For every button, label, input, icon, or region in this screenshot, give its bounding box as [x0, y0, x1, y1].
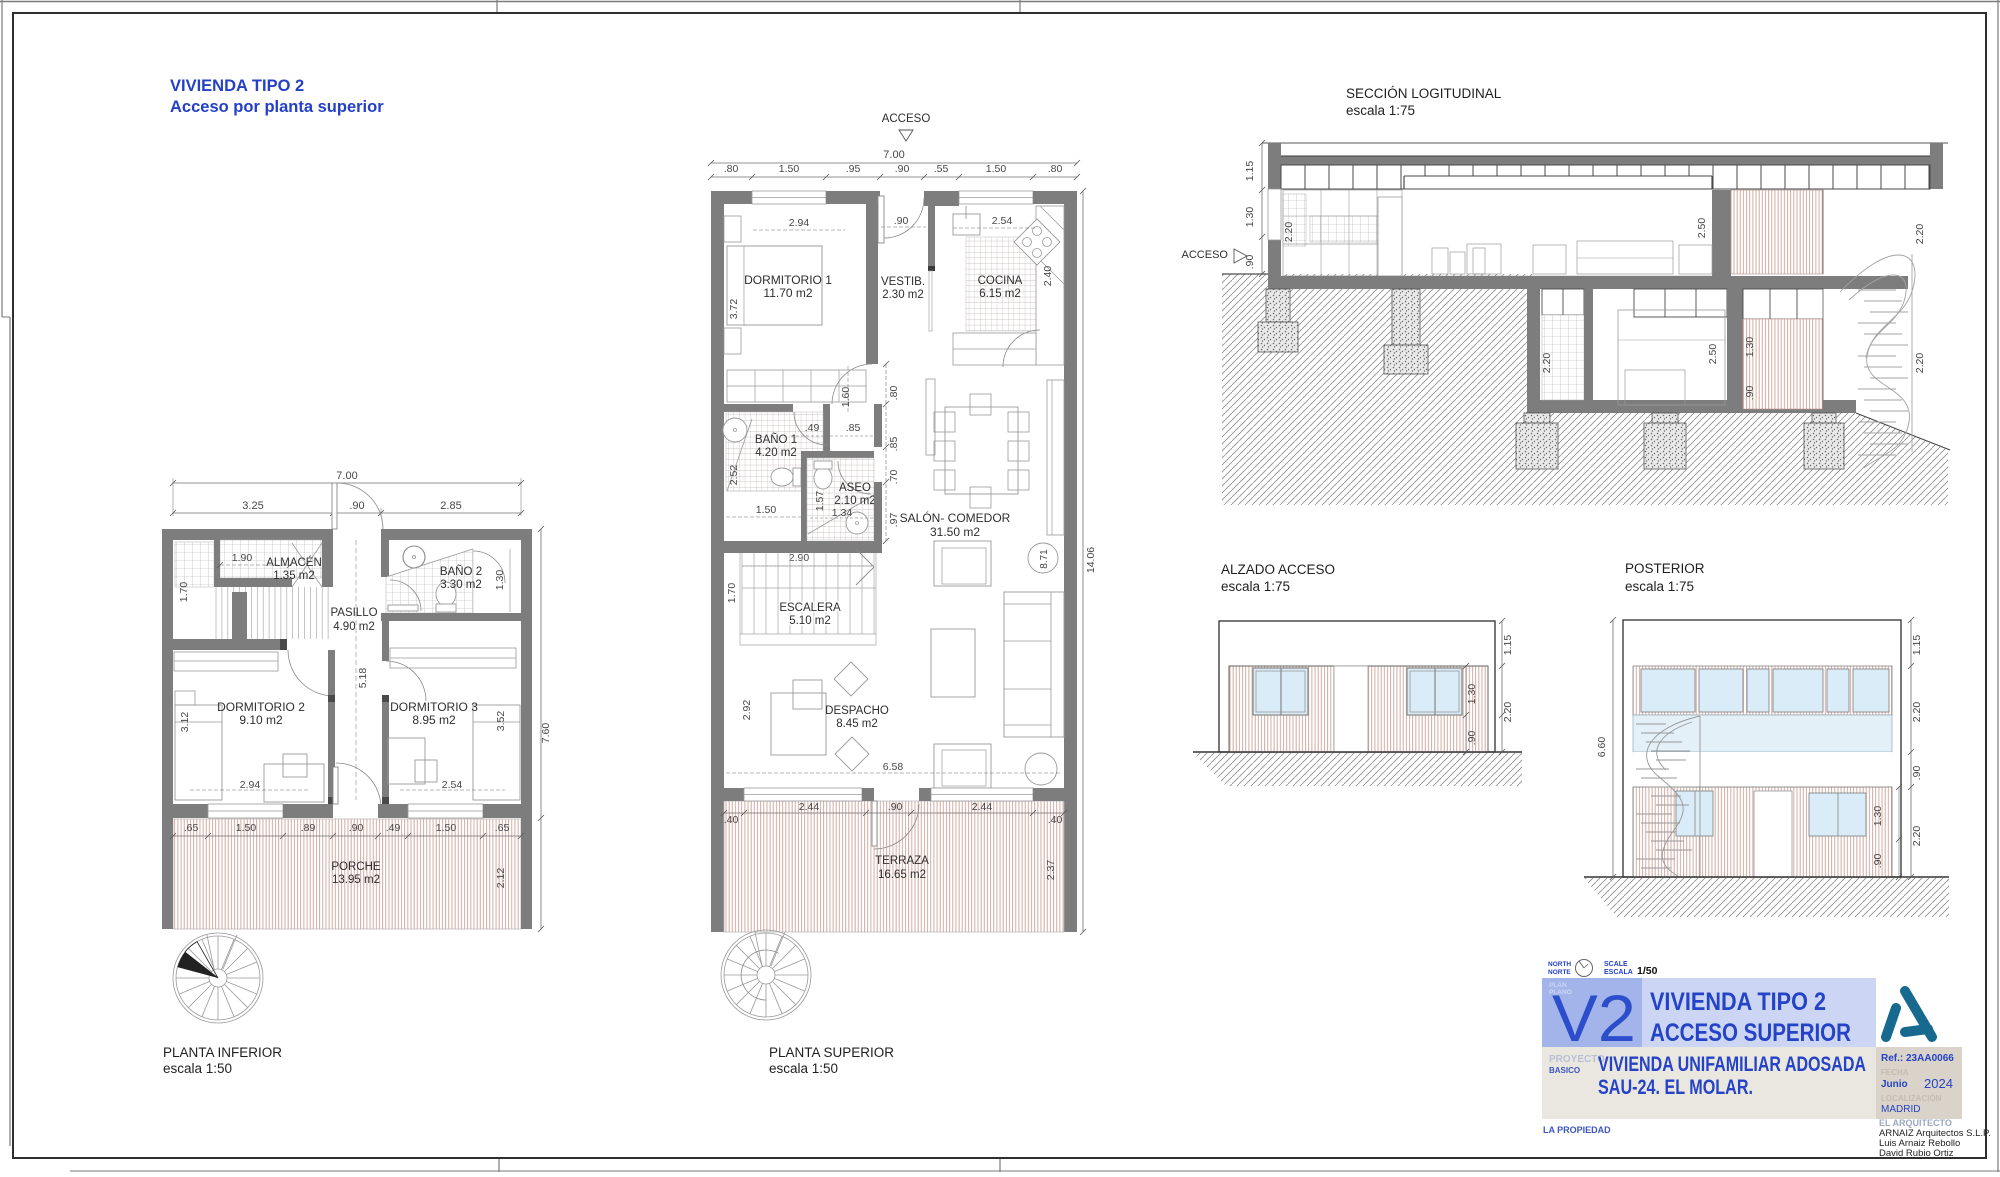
- svg-text:2.44: 2.44: [799, 801, 820, 813]
- svg-text:MADRID: MADRID: [1881, 1104, 1920, 1115]
- svg-text:.90: .90: [349, 822, 364, 834]
- svg-text:1/50: 1/50: [1637, 965, 1658, 977]
- svg-text:.65: .65: [495, 822, 510, 834]
- svg-text:3.12: 3.12: [179, 712, 191, 733]
- svg-text:1.70: 1.70: [726, 583, 738, 604]
- svg-text:5.10 m2: 5.10 m2: [789, 615, 831, 627]
- svg-text:2.54: 2.54: [442, 779, 463, 791]
- svg-text:1.50: 1.50: [779, 163, 800, 175]
- svg-text:Junio: Junio: [1881, 1079, 1908, 1090]
- svg-text:2.52: 2.52: [728, 465, 740, 486]
- svg-text:COCINA: COCINA: [978, 275, 1023, 287]
- svg-text:.90: .90: [1911, 766, 1923, 781]
- svg-text:2.20: 2.20: [1911, 702, 1923, 723]
- svg-text:BAÑO 1: BAÑO 1: [755, 433, 797, 446]
- svg-text:PLANTA SUPERIOR: PLANTA SUPERIOR: [769, 1045, 894, 1060]
- svg-text:2.50: 2.50: [1696, 218, 1708, 239]
- svg-text:escala 1:50: escala 1:50: [163, 1061, 232, 1076]
- svg-text:ALZADO ACCESO: ALZADO ACCESO: [1221, 562, 1335, 577]
- svg-text:escala 1:50: escala 1:50: [769, 1061, 838, 1076]
- svg-text:.90: .90: [349, 500, 364, 512]
- svg-text:.90: .90: [1744, 386, 1756, 401]
- svg-text:FECHA: FECHA: [1881, 1068, 1909, 1077]
- svg-text:8.95 m2: 8.95 m2: [412, 713, 456, 727]
- svg-text:2.20: 2.20: [1914, 353, 1926, 374]
- svg-text:2.92: 2.92: [741, 700, 753, 721]
- svg-text:TERRAZA: TERRAZA: [875, 855, 929, 867]
- svg-text:3.30 m2: 3.30 m2: [440, 579, 482, 591]
- svg-text:2.54: 2.54: [992, 215, 1013, 227]
- svg-text:.97: .97: [888, 513, 900, 528]
- svg-text:escala 1:75: escala 1:75: [1346, 103, 1415, 118]
- svg-text:Acceso por planta superior: Acceso por planta superior: [170, 98, 384, 116]
- svg-text:2.37: 2.37: [1045, 860, 1057, 881]
- svg-text:1.60: 1.60: [840, 387, 852, 408]
- svg-text:.80: .80: [1048, 163, 1063, 175]
- svg-text:1.35 m2: 1.35 m2: [273, 570, 315, 582]
- svg-text:NORTH: NORTH: [1548, 961, 1571, 968]
- svg-text:3.72: 3.72: [728, 299, 740, 320]
- svg-text:11.70 m2: 11.70 m2: [763, 286, 812, 300]
- svg-text:.80: .80: [888, 386, 900, 401]
- svg-text:2.85: 2.85: [440, 500, 461, 512]
- svg-text:8.45 m2: 8.45 m2: [836, 718, 878, 730]
- svg-text:6.60: 6.60: [1596, 737, 1608, 758]
- svg-text:1.50: 1.50: [986, 163, 1007, 175]
- svg-text:2.20: 2.20: [1911, 826, 1923, 847]
- svg-text:13.95 m2: 13.95 m2: [332, 874, 380, 886]
- svg-text:1.15: 1.15: [1244, 161, 1256, 182]
- svg-text:2.50: 2.50: [1707, 344, 1719, 365]
- svg-text:NORTE: NORTE: [1548, 969, 1571, 976]
- svg-text:2.20: 2.20: [1914, 224, 1926, 245]
- svg-text:2.40: 2.40: [1042, 266, 1054, 287]
- svg-text:6.15 m2: 6.15 m2: [979, 288, 1021, 300]
- svg-text:1.70: 1.70: [178, 582, 190, 603]
- svg-text:DORMITORIO 2: DORMITORIO 2: [217, 700, 305, 714]
- svg-text:.90: .90: [894, 215, 909, 227]
- svg-text:7.60: 7.60: [540, 723, 552, 744]
- svg-text:1.34: 1.34: [832, 507, 853, 519]
- svg-text:PORCHE: PORCHE: [331, 861, 381, 873]
- svg-text:.40: .40: [724, 814, 739, 826]
- svg-text:1.15: 1.15: [1502, 635, 1514, 656]
- svg-text:7.00: 7.00: [883, 149, 904, 161]
- svg-text:PROYECTO: PROYECTO: [1549, 1054, 1605, 1065]
- svg-text:4.20 m2: 4.20 m2: [755, 447, 797, 459]
- svg-text:14.06: 14.06: [1085, 547, 1097, 573]
- svg-text:1.30: 1.30: [1872, 806, 1884, 827]
- svg-text:2.94: 2.94: [789, 217, 810, 229]
- svg-text:1.57: 1.57: [814, 491, 826, 512]
- svg-text:31.50 m2: 31.50 m2: [930, 525, 980, 539]
- svg-text:9.10 m2: 9.10 m2: [239, 713, 283, 727]
- svg-text:.90: .90: [895, 163, 910, 175]
- svg-text:VIVIENDA TIPO 2: VIVIENDA TIPO 2: [170, 77, 304, 95]
- svg-text:2.20: 2.20: [1541, 353, 1553, 374]
- svg-text:SALÓN- COMEDOR: SALÓN- COMEDOR: [900, 510, 1011, 525]
- svg-text:PLANTA INFERIOR: PLANTA INFERIOR: [163, 1045, 282, 1060]
- svg-text:ALMACÉN: ALMACÉN: [266, 556, 322, 569]
- svg-text:VIVIENDA TIPO 2: VIVIENDA TIPO 2: [1650, 988, 1826, 1016]
- svg-text:.90: .90: [888, 801, 903, 813]
- svg-text:.90: .90: [1244, 255, 1256, 270]
- svg-text:.65: .65: [184, 822, 199, 834]
- svg-text:SAU-24. EL MOLAR.: SAU-24. EL MOLAR.: [1598, 1076, 1753, 1099]
- svg-text:2.44: 2.44: [972, 801, 993, 813]
- svg-text:ESCALA: ESCALA: [1604, 969, 1633, 976]
- svg-text:1.30: 1.30: [1744, 337, 1756, 358]
- svg-text:DORMITORIO 3: DORMITORIO 3: [390, 700, 478, 714]
- svg-text:.49: .49: [805, 422, 820, 434]
- svg-text:V2: V2: [1552, 981, 1636, 1055]
- svg-text:2.30 m2: 2.30 m2: [882, 289, 924, 301]
- svg-text:5.18: 5.18: [357, 668, 369, 689]
- svg-text:3.52: 3.52: [495, 711, 507, 732]
- svg-text:.85: .85: [888, 437, 900, 452]
- svg-text:escala 1:75: escala 1:75: [1221, 579, 1290, 594]
- svg-text:.70: .70: [888, 470, 900, 485]
- svg-text:1.30: 1.30: [494, 570, 506, 591]
- svg-text:1.30: 1.30: [1466, 684, 1478, 705]
- svg-text:.90: .90: [1872, 854, 1884, 869]
- svg-text:DORMITORIO 1: DORMITORIO 1: [744, 273, 832, 287]
- svg-text:.90: .90: [1466, 731, 1478, 746]
- svg-text:16.65 m2: 16.65 m2: [878, 869, 926, 881]
- svg-text:POSTERIOR: POSTERIOR: [1625, 561, 1705, 576]
- svg-text:EL ARQUITECTO: EL ARQUITECTO: [1879, 1118, 1952, 1128]
- svg-text:LA PROPIEDAD: LA PROPIEDAD: [1543, 1125, 1611, 1135]
- svg-text:.95: .95: [846, 163, 861, 175]
- svg-text:2.20: 2.20: [1283, 222, 1295, 243]
- svg-text:2.20: 2.20: [1502, 702, 1514, 723]
- svg-text:BASICO: BASICO: [1549, 1066, 1580, 1075]
- svg-text:6.58: 6.58: [883, 761, 904, 773]
- svg-text:2.90: 2.90: [789, 552, 810, 564]
- svg-text:.55: .55: [934, 163, 949, 175]
- svg-text:2.10 m2: 2.10 m2: [834, 495, 876, 507]
- svg-text:Ref.: 23AA0066: Ref.: 23AA0066: [1881, 1053, 1954, 1064]
- svg-text:ASEO: ASEO: [839, 482, 871, 494]
- svg-text:SCALE: SCALE: [1604, 961, 1628, 968]
- svg-text:ACCESO: ACCESO: [882, 113, 931, 125]
- svg-text:1.30: 1.30: [1244, 207, 1256, 228]
- svg-text:PASILLO: PASILLO: [330, 607, 377, 619]
- svg-text:.85: .85: [846, 422, 861, 434]
- svg-text:ACCESO: ACCESO: [1182, 249, 1229, 261]
- svg-text:VESTIB.: VESTIB.: [881, 276, 925, 288]
- svg-text:2.12: 2.12: [495, 868, 507, 889]
- svg-text:.40: .40: [1048, 814, 1063, 826]
- svg-text:David Rubio Ortiz: David Rubio Ortiz: [1879, 1148, 1954, 1159]
- svg-text:DESPACHO: DESPACHO: [825, 705, 889, 717]
- svg-text:ESCALERA: ESCALERA: [779, 602, 841, 614]
- svg-text:escala 1:75: escala 1:75: [1625, 579, 1694, 594]
- svg-text:.80: .80: [724, 163, 739, 175]
- svg-text:1.50: 1.50: [236, 822, 257, 834]
- svg-text:VIVIENDA UNIFAMILIAR ADOSADA: VIVIENDA UNIFAMILIAR ADOSADA: [1598, 1053, 1866, 1076]
- svg-text:1.50: 1.50: [756, 504, 777, 516]
- svg-text:2.94: 2.94: [240, 779, 261, 791]
- svg-text:LOCALIZACIÓN: LOCALIZACIÓN: [1881, 1094, 1942, 1103]
- svg-text:1.15: 1.15: [1911, 635, 1923, 656]
- svg-text:ACCESO SUPERIOR: ACCESO SUPERIOR: [1650, 1019, 1851, 1047]
- svg-text:BAÑO 2: BAÑO 2: [440, 565, 482, 578]
- svg-text:4.90 m2: 4.90 m2: [333, 621, 375, 633]
- svg-text:.89: .89: [301, 822, 316, 834]
- svg-text:2024: 2024: [1924, 1076, 1953, 1091]
- svg-text:1.90: 1.90: [232, 552, 253, 564]
- svg-text:SECCIÓN LOGITUDINAL: SECCIÓN LOGITUDINAL: [1346, 86, 1502, 101]
- svg-text:1.50: 1.50: [436, 822, 457, 834]
- svg-text:3.25: 3.25: [242, 500, 263, 512]
- svg-text:.49: .49: [386, 822, 401, 834]
- svg-text:7.00: 7.00: [336, 470, 357, 482]
- svg-text:8.71: 8.71: [1039, 549, 1050, 569]
